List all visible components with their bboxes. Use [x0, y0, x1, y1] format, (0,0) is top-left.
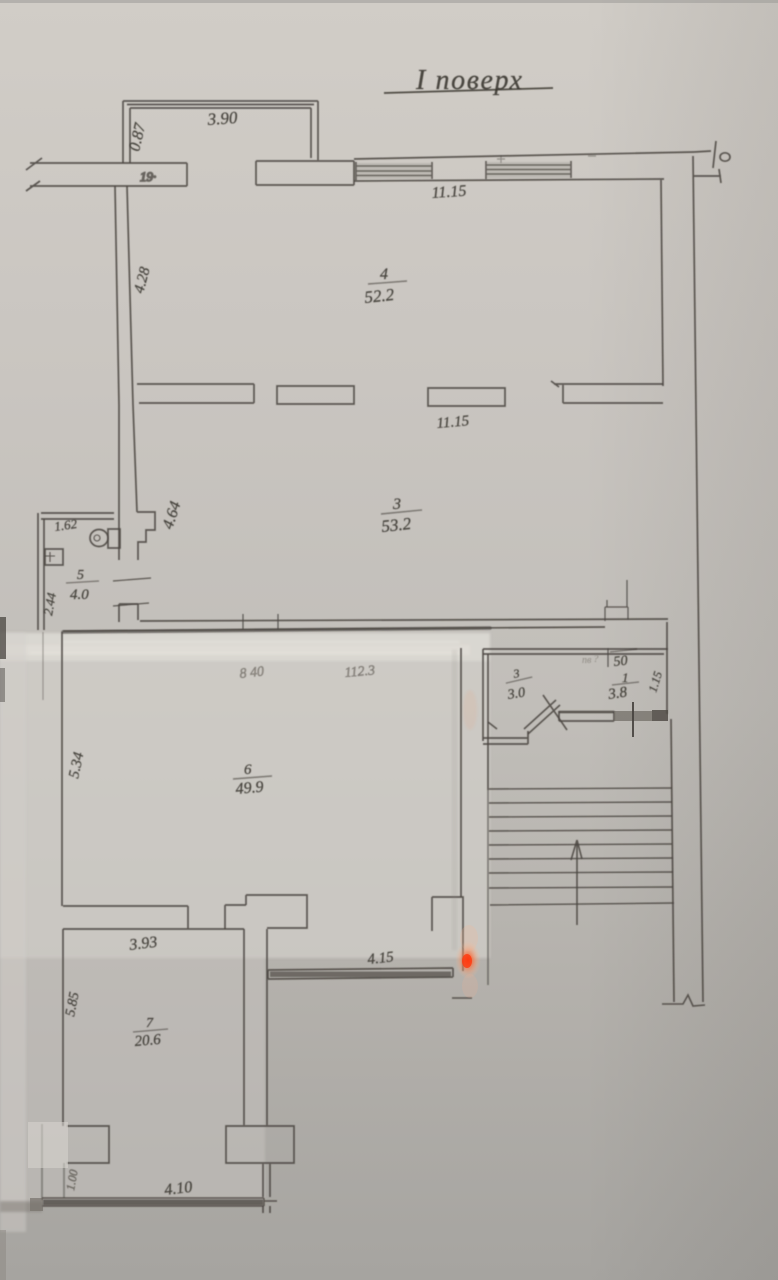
svg-text:20.6: 20.6: [134, 1032, 162, 1050]
svg-text:3.93: 3.93: [127, 934, 158, 954]
svg-text:4: 4: [380, 266, 388, 283]
svg-text:3.0: 3.0: [506, 685, 527, 703]
svg-text:11.15: 11.15: [431, 183, 467, 202]
svg-text:5: 5: [77, 568, 84, 583]
svg-text:49.9: 49.9: [235, 779, 264, 798]
svg-text:8 40: 8 40: [239, 664, 265, 681]
svg-text:4.10: 4.10: [163, 1179, 193, 1199]
svg-text:3.8: 3.8: [606, 684, 628, 703]
svg-text:3: 3: [392, 496, 401, 513]
svg-text:6: 6: [244, 762, 252, 778]
svg-text:7: 7: [146, 1016, 154, 1031]
svg-text:4.0: 4.0: [70, 587, 89, 603]
svg-text:50: 50: [613, 654, 628, 670]
svg-text:52.2: 52.2: [363, 285, 395, 307]
svg-text:19·: 19·: [140, 169, 156, 184]
svg-text:11.15: 11.15: [436, 413, 470, 432]
svg-text:53.2: 53.2: [380, 514, 412, 536]
svg-text:пв?: пв?: [582, 654, 598, 666]
svg-text:3.90: 3.90: [206, 108, 238, 129]
svg-text:1.62: 1.62: [53, 516, 78, 534]
svg-text:112.3: 112.3: [344, 663, 376, 681]
svg-text:4.15: 4.15: [367, 949, 395, 968]
